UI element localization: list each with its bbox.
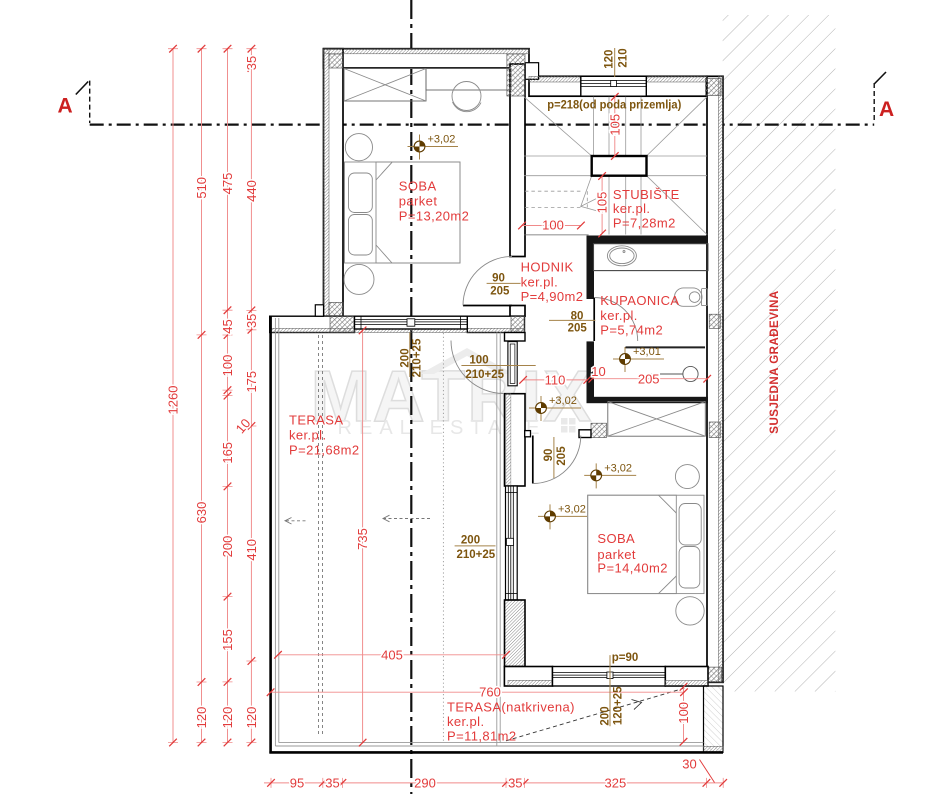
svg-text:210+25: 210+25 [456,549,495,561]
svg-text:30: 30 [682,757,696,772]
svg-text:A: A [58,95,73,118]
svg-text:10: 10 [591,364,605,379]
svg-text:175: 175 [244,371,259,393]
svg-text:P=4,90m2: P=4,90m2 [521,289,584,304]
svg-text:100: 100 [469,354,488,366]
svg-text:100: 100 [220,355,235,377]
svg-text:210+25: 210+25 [411,338,423,377]
svg-text:P=5,74m2: P=5,74m2 [600,323,663,338]
svg-text:P=13,20m2: P=13,20m2 [399,209,469,224]
svg-text:405: 405 [381,647,403,662]
svg-text:210+25: 210+25 [465,369,504,381]
svg-text:110: 110 [545,372,566,387]
svg-text:200: 200 [461,534,480,546]
svg-text:+3,02: +3,02 [558,503,586,515]
svg-text:325: 325 [605,775,627,790]
svg-text:120: 120 [604,50,616,69]
svg-text:735: 735 [355,528,370,550]
svg-text:35: 35 [508,775,522,790]
svg-text:HODNIK: HODNIK [521,260,574,275]
svg-text:510: 510 [194,177,209,199]
svg-text:200: 200 [220,536,235,558]
svg-text:105: 105 [607,114,622,136]
svg-text:105: 105 [595,192,610,214]
svg-text:1260: 1260 [166,386,181,415]
svg-text:P=11,81m2: P=11,81m2 [447,729,517,744]
svg-text:TERASA(natkrivena): TERASA(natkrivena) [447,700,575,715]
svg-text:95: 95 [290,775,304,790]
svg-text:35: 35 [244,56,259,70]
svg-text:100: 100 [542,218,564,233]
svg-text:410: 410 [244,539,259,561]
svg-text:120+25: 120+25 [613,686,625,725]
svg-text:45: 45 [220,319,235,333]
svg-text:290: 290 [414,775,436,790]
svg-text:165: 165 [220,442,235,464]
svg-text:KUPAONICA: KUPAONICA [600,293,679,308]
svg-text:P=21,68m2: P=21,68m2 [289,443,359,458]
svg-text:p=90: p=90 [612,652,639,664]
svg-text:STUBIŠTE: STUBIŠTE [613,187,680,202]
svg-text:205: 205 [490,285,510,297]
svg-text:440: 440 [244,180,259,202]
svg-text:35: 35 [325,775,339,790]
svg-text:155: 155 [220,629,235,651]
svg-text:SUSJEDNA GRAĐEVINA: SUSJEDNA GRAĐEVINA [769,290,781,433]
svg-text:SOBA: SOBA [597,531,635,546]
svg-text:parket: parket [399,194,438,209]
svg-text:205: 205 [568,322,588,334]
svg-text:ker.pl.: ker.pl. [289,428,326,443]
svg-text:90: 90 [492,272,505,284]
svg-text:ker.pl.: ker.pl. [447,714,484,729]
svg-text:100: 100 [676,702,691,724]
svg-text:210: 210 [618,48,630,67]
svg-text:35: 35 [244,314,259,328]
svg-text:760: 760 [479,685,501,700]
svg-text:120: 120 [220,707,235,729]
svg-text:SOBA: SOBA [399,179,437,194]
svg-text:90: 90 [543,449,555,462]
svg-text:+3,01: +3,01 [633,346,661,358]
svg-text:200: 200 [600,706,612,725]
svg-text:120: 120 [194,707,209,729]
svg-text:205: 205 [556,446,568,466]
svg-text:P=7,28m2: P=7,28m2 [613,216,676,231]
svg-text:200: 200 [400,348,412,367]
svg-text:120: 120 [244,707,259,729]
svg-text:TERASA: TERASA [289,413,343,428]
svg-text:+3,02: +3,02 [549,395,577,407]
svg-text:ker.pl.: ker.pl. [521,275,558,290]
svg-text:630: 630 [194,502,209,524]
svg-text:205: 205 [638,371,660,386]
svg-text:80: 80 [571,311,584,323]
svg-text:P=14,40m2: P=14,40m2 [597,561,667,576]
svg-text:ker.pl.: ker.pl. [600,308,637,323]
svg-text:p=218(od poda prizemlja): p=218(od poda prizemlja) [547,98,681,112]
svg-text:A: A [879,98,894,121]
svg-text:+3,02: +3,02 [604,462,632,474]
svg-text:ker.pl.: ker.pl. [613,201,650,216]
svg-text:+3,02: +3,02 [428,134,456,146]
svg-text:475: 475 [220,173,235,195]
